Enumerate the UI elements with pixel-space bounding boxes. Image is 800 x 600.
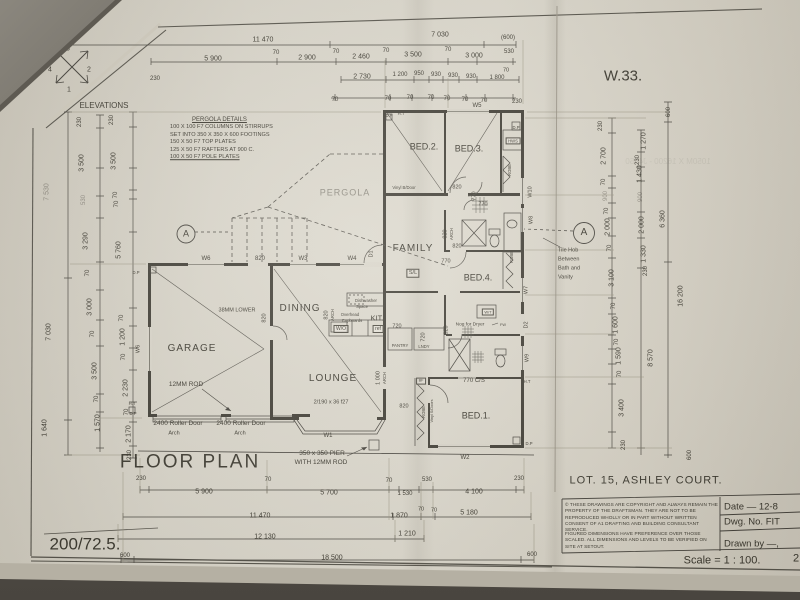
dim-left: 3 500	[79, 154, 86, 172]
dim-top: 2 730	[353, 74, 371, 81]
door-label: ARCH	[331, 309, 335, 321]
dim-top: 930	[466, 74, 476, 80]
compass-1: 1	[67, 87, 71, 94]
door-label: 820	[452, 244, 461, 250]
pergola-label: PERGOLA	[320, 189, 371, 198]
wall-tag: W8	[529, 216, 535, 224]
titleblock-drawn-by: Drawn by —,	[724, 539, 779, 549]
paper-fold-crease	[544, 0, 566, 600]
dim-right: 3 400	[619, 399, 626, 417]
wall-tag: D.P	[386, 114, 393, 118]
dim-top: 70	[383, 48, 390, 54]
wall-tag: W10	[528, 186, 534, 197]
dim-right: 1 430	[637, 165, 644, 183]
page-title: FLOOR PLAN	[120, 453, 260, 472]
dim-top: 530	[504, 49, 514, 55]
dim-right: 2 000	[639, 216, 646, 234]
dim-top: 70	[273, 50, 280, 56]
wall-tag: W6	[136, 345, 142, 353]
room-bed4: BED.4.	[464, 274, 493, 283]
wall-tag: W6	[202, 256, 211, 262]
dim-top: 70	[445, 47, 452, 53]
arch-label: Arch	[234, 431, 245, 437]
dim-right: 1 590	[616, 347, 623, 365]
dim-top: 1 800	[489, 75, 504, 81]
dim-left: 3 000	[87, 298, 94, 316]
dim-bottom: 5 900	[195, 489, 213, 496]
note-pier: 350 x 350 PIER	[299, 451, 345, 458]
note-cupboards: Overhead	[341, 313, 359, 317]
pergola-details-line: SET INTO 350 X 350 X 600 FOOTINGS	[170, 133, 270, 139]
dim-left: 5 760	[116, 241, 123, 259]
note-lower: 38MM LOWER	[219, 308, 256, 314]
door-label: 770	[478, 202, 487, 208]
section-marker-a: A	[581, 228, 588, 238]
dim-top: 70	[333, 49, 340, 55]
dim-left: 230	[77, 117, 83, 127]
wall-tag: H.T	[524, 380, 531, 384]
door-label: ARCH	[383, 372, 387, 384]
dim-left: 70	[85, 270, 91, 277]
titleblock-copyright-note: © THESE DRAWINGS ARE COPYRIGHT AND ALWAY…	[565, 502, 718, 534]
arch-label: Arch	[168, 431, 179, 437]
robe-label: ROBE	[508, 164, 512, 176]
dim-top: 2 900	[298, 55, 316, 62]
door-label: 720	[392, 324, 401, 330]
dim-right: 900	[603, 191, 609, 201]
dim-bottom: 12 130	[254, 534, 275, 541]
dim-top: 230	[512, 99, 522, 105]
drawing-number: W.33.	[604, 69, 642, 84]
door-label: 770	[472, 191, 478, 200]
dim-right: 70	[607, 245, 613, 252]
dim-right: 6 360	[660, 210, 667, 228]
room-garage: GARAGE	[168, 344, 217, 354]
door-label: 770 C/S	[463, 378, 485, 384]
dim-left: 70	[121, 354, 127, 361]
dim-bottom: 11 470	[250, 513, 271, 520]
wall-tag: W5	[473, 103, 482, 109]
wall-tag: D.P	[133, 271, 140, 275]
dim-top: 930	[448, 73, 458, 79]
room-kitchen: KIT.	[371, 314, 384, 322]
compass-4: 4	[48, 67, 52, 74]
compass-2: 2	[87, 67, 91, 74]
door-label: 820	[262, 313, 268, 322]
wall-tag: W7	[524, 286, 530, 294]
dim-left: 3 290	[83, 232, 90, 250]
note-dryer: Nog for Dryer	[456, 324, 485, 329]
pergola-details-line: 150 X 50 F7 TOP PLATES	[170, 140, 236, 146]
dim-bottom: 600	[120, 553, 130, 559]
dim-left: 3 500	[92, 362, 99, 380]
section-marker-a: A	[183, 230, 189, 239]
door-label: 820	[255, 256, 265, 262]
dim-left: 7 030	[46, 323, 53, 341]
wall-tag: D2	[524, 321, 530, 328]
photographed-floor-plan-sheet: 11 4707 030(600)5 900702 900702 460703 5…	[0, 0, 800, 600]
dim-left: 1 200	[120, 328, 127, 346]
dim-right: 3 100	[609, 269, 616, 287]
dim-left: 70	[114, 201, 120, 208]
dim-top: 70	[385, 96, 392, 102]
dim-right: 900	[638, 192, 644, 202]
wall-tag: W2	[461, 455, 470, 461]
dim-bottom: 230	[136, 476, 146, 482]
dim-right: 8 570	[648, 349, 655, 367]
dim-bottom: 70	[265, 477, 272, 483]
note-rod: 12MM ROD	[169, 382, 203, 389]
titleblock-dwg-no: Dwg. No. FIT	[724, 517, 780, 527]
elevations-label: ELEVATIONS	[79, 102, 128, 110]
fixture-hws: HWS	[506, 137, 521, 144]
roller-door-label: 2400 Roller Door	[153, 421, 202, 428]
room-dining: DINING	[280, 304, 321, 314]
dim-top: 2 460	[352, 54, 370, 61]
wall-tag: D.P	[513, 126, 520, 130]
dim-right: 1 600	[613, 316, 620, 334]
dim-right: 230	[598, 121, 604, 131]
dim-top: (600)	[501, 35, 515, 41]
dim-right: 70	[611, 303, 617, 310]
dim-bottom: 600	[527, 552, 537, 558]
dim-right: 2 000	[605, 218, 612, 236]
dim-left: 70	[94, 396, 100, 403]
dim-bottom: 5 700	[320, 490, 338, 497]
note-cupboards: Cupboards	[342, 319, 363, 323]
dim-bottom: 5 180	[460, 510, 478, 517]
dim-left: 7 530	[44, 183, 51, 201]
wall-tag: D.P	[130, 412, 137, 416]
roller-door-label: 2400 Roller Door	[216, 421, 265, 428]
wall-tag: W4	[348, 256, 357, 262]
dim-right: 2 700	[601, 147, 608, 165]
note-pier: WITH 12MM ROD	[295, 460, 348, 467]
dim-left: 530	[81, 195, 87, 205]
dim-left: 3 500	[111, 152, 118, 170]
wall-tag: W3	[299, 256, 308, 262]
wall-tag: W1	[324, 433, 333, 439]
pergola-details-line: 100 X 100 F7 COLUMNS ON STIRRUPS	[170, 125, 273, 131]
dim-left: 70	[119, 315, 125, 322]
dim-top: 5 900	[204, 56, 222, 63]
wall-tag: W9	[525, 354, 531, 362]
titleblock-dimension-note: FIGURED DIMENSIONS HAVE PREFERENCE OVER …	[565, 531, 718, 550]
note-dishwasher: Space	[356, 305, 368, 309]
dim-top: 70	[444, 96, 451, 102]
dim-right: 16 200	[678, 285, 685, 306]
note-bay: 2/190 x 36 f27	[314, 400, 349, 406]
wall-tag: D.P	[526, 442, 533, 446]
dim-bottom: 230	[514, 476, 524, 482]
dim-top: 11 470	[253, 37, 274, 44]
dim-right: 70	[601, 179, 607, 186]
dim-right: 600	[687, 450, 693, 460]
pergola-details-line: 125 X 50 F7 RAFTERS AT 900 C.	[170, 148, 254, 154]
door-label: 770	[441, 259, 450, 265]
dim-bottom: 70	[386, 478, 393, 484]
dim-left: 2 170	[126, 425, 133, 443]
note-dishwasher: Dishwasher	[355, 299, 377, 303]
robe-label: ROBE	[510, 251, 514, 263]
dim-right: 600	[666, 107, 672, 117]
dim-top: 70	[503, 68, 509, 74]
sheet-ref: 200/72.5.	[50, 536, 121, 553]
wall-tag: H.T	[129, 402, 136, 406]
fixture-fridge: ref	[373, 325, 384, 333]
dim-bottom: 4 100	[465, 489, 483, 496]
dim-left: 230	[109, 115, 115, 125]
dim-left: 2 230	[123, 379, 130, 397]
dim-right: 230	[621, 440, 627, 450]
door-label: 820	[452, 185, 461, 191]
dim-top: 70	[462, 97, 469, 103]
dim-right: 1 270	[641, 132, 648, 150]
dim-right: 70	[614, 339, 620, 346]
pergola-details-title: PERGOLA DETAILS	[192, 117, 247, 123]
dim-left: 1 640	[42, 419, 49, 437]
titleblock-scale: Scale = 1 : 100.	[684, 556, 761, 567]
door-label: 820	[444, 325, 450, 334]
dim-top: 70	[332, 97, 339, 103]
dim-right: 230	[643, 266, 649, 276]
room-lounge: LOUNGE	[309, 374, 357, 384]
titleblock-date: Date — 12-8	[724, 502, 778, 512]
lot-title: LOT. 15, ASHLEY COURT.	[569, 476, 722, 487]
dim-left: 70	[90, 331, 96, 338]
pergola-details-line: 100 X 50 F7 POLE PLATES	[170, 155, 240, 161]
paper-fold-crease	[402, 0, 434, 600]
room-bed3: BED.3.	[455, 145, 484, 154]
fixture-wall-oven: W/O	[334, 325, 349, 333]
note-floor-waste: FW	[500, 324, 506, 328]
room-bed1: BED.1.	[462, 412, 491, 421]
titleblock-scale: 2	[793, 554, 799, 565]
wall-tag: D1	[369, 250, 375, 257]
dim-top: 70	[481, 98, 488, 104]
dim-left: 70	[113, 192, 119, 199]
dim-top: 230	[150, 76, 160, 82]
dim-top: 3 000	[465, 53, 483, 60]
dim-right: 70	[617, 371, 623, 378]
door-label: ARCH	[450, 228, 454, 240]
fixture-trough: W/T	[482, 309, 494, 316]
dim-right: 1 330	[641, 245, 648, 263]
bleed-through-text: 1050M X 16200 - J4550	[625, 158, 710, 166]
dim-left: 1 570	[95, 414, 102, 432]
dim-bottom: 18 500	[321, 555, 342, 562]
dim-right: 70	[604, 208, 610, 215]
